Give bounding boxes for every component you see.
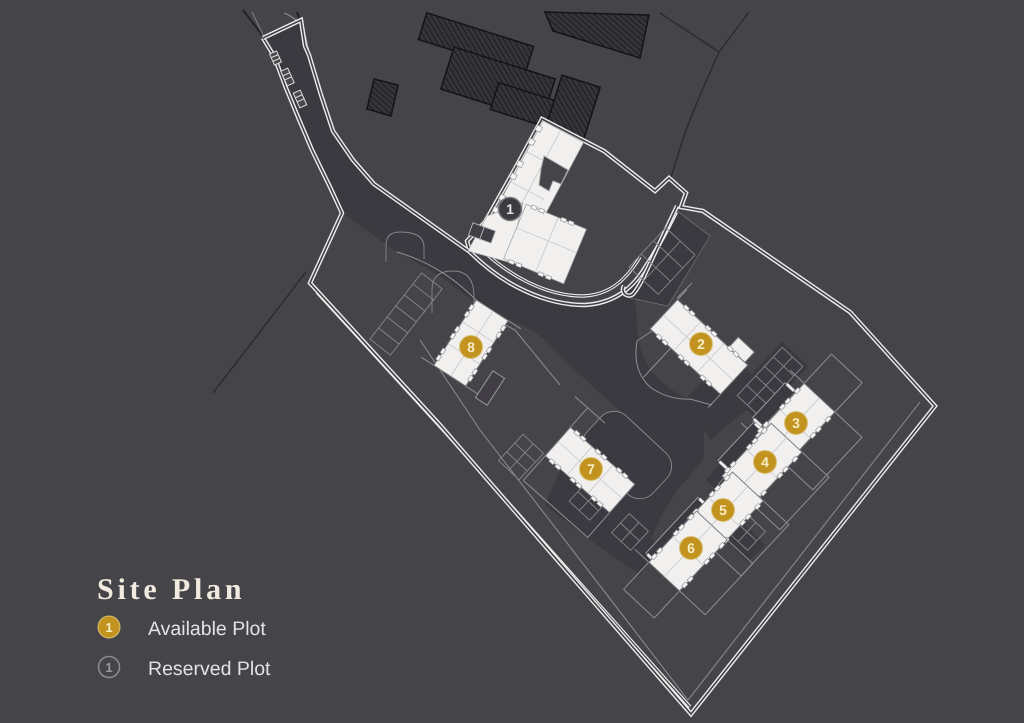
svg-text:5: 5	[719, 502, 727, 518]
svg-text:Site Plan: Site Plan	[97, 573, 245, 606]
svg-text:1: 1	[105, 620, 112, 635]
svg-text:Available Plot: Available Plot	[148, 618, 266, 640]
svg-text:8: 8	[467, 339, 475, 355]
svg-text:7: 7	[587, 461, 595, 477]
svg-text:Reserved Plot: Reserved Plot	[148, 658, 271, 680]
svg-text:4: 4	[761, 454, 769, 470]
svg-text:6: 6	[687, 540, 695, 556]
svg-text:1: 1	[105, 660, 112, 675]
svg-text:2: 2	[697, 336, 705, 352]
svg-text:3: 3	[792, 415, 800, 431]
svg-text:1: 1	[506, 201, 514, 217]
